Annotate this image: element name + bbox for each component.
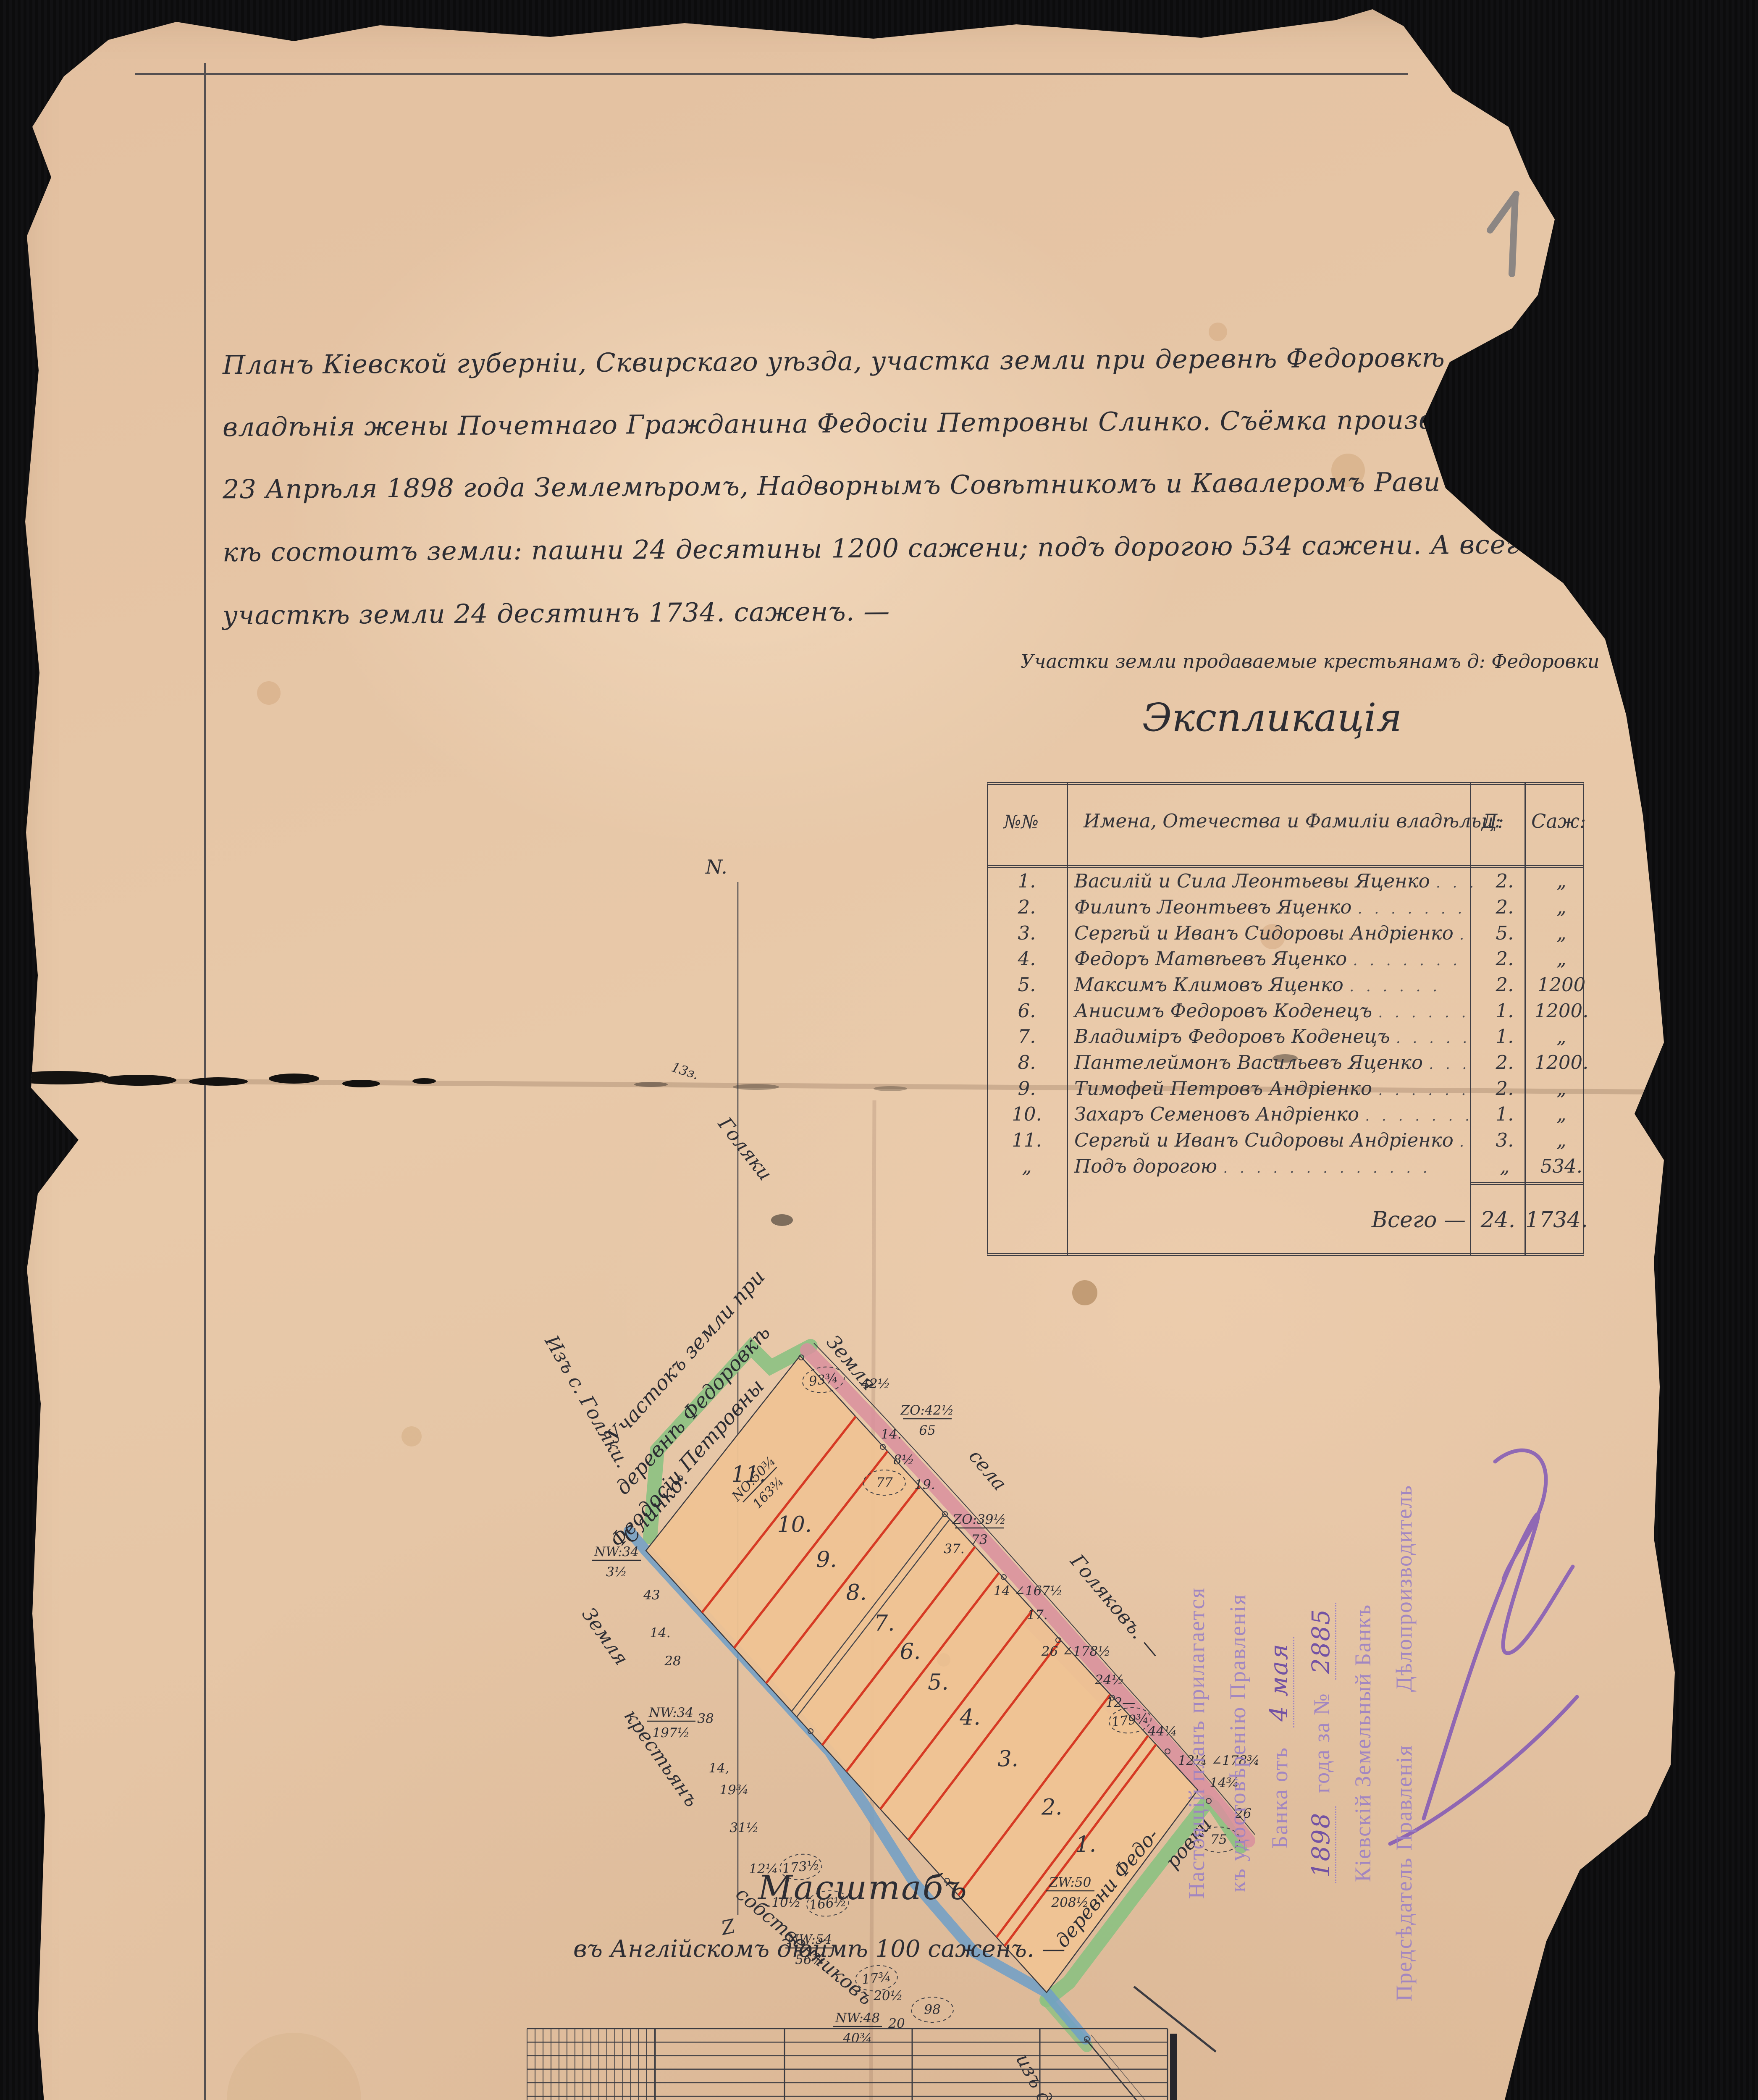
measurement-label: 31½: [729, 1820, 759, 1835]
measurement-label: 24½: [1094, 1672, 1124, 1688]
cell-desyatiny: 2.: [1477, 896, 1532, 918]
svg-text:NW:34: NW:34: [594, 1544, 639, 1559]
cell-sazheni: „: [1532, 1129, 1591, 1151]
scanned-document-page: N. Z 11.10.9.8.7.6.5.4.3.2.1.: [0, 0, 1758, 2100]
plot-number: 3.: [997, 1747, 1018, 1772]
stamp-year-handwritten: 1898: [1307, 1806, 1336, 1884]
scale-title: Масштабъ: [758, 1868, 968, 1907]
measurement-label: 14.: [881, 1427, 901, 1442]
cell-sazheni: „: [1532, 870, 1591, 892]
cell-owner-name: Пантелеймонъ Васильевъ Яценко . . . .: [1067, 1051, 1477, 1074]
bank-stamp-line-3: Банка отъ 4 мая: [1258, 1472, 1300, 2014]
table-total-row: Всего — 24. 1734.: [987, 1185, 1584, 1255]
cell-owner-name: Захаръ Семеновъ Андріенко . . . . . . . …: [1067, 1103, 1477, 1125]
cell-desyatiny: 2.: [1477, 870, 1532, 892]
dot-leader: . . . . . .: [1378, 1082, 1469, 1099]
bank-stamp-line-2: къ удостовѣренію Правленія: [1217, 1472, 1258, 2014]
col-header-num: №№: [1004, 811, 1039, 833]
cell-owner-name: Анисимъ Федоровъ Коденецъ . . . . . .: [1067, 1000, 1477, 1022]
svg-text:изъ д: Федоровки. —: изъ д: Федоровки. —: [1011, 2050, 1129, 2100]
explication-table: №№ Имена, Отечества и Фамиліи владѣльц: …: [987, 782, 1584, 1256]
measurement-label: ZO:42½65: [900, 1403, 954, 1438]
cell-sazheni: „: [1532, 1077, 1591, 1100]
cell-sazheni: „: [1532, 922, 1591, 944]
svg-text:77: 77: [876, 1475, 893, 1490]
svg-text:19¾: 19¾: [719, 1782, 749, 1798]
cell-owner-name: Владиміръ Федоровъ Коденецъ . . . . . .: [1067, 1025, 1477, 1047]
scale-bar-shadow-right: [1170, 2034, 1177, 2100]
plot-number: 1.: [1076, 1832, 1097, 1857]
cell-desyatiny: 1.: [1477, 1000, 1532, 1022]
plot-number: 7.: [874, 1611, 895, 1636]
bank-stamp-line-5: Кіевскій Земельный Банкъ: [1342, 1472, 1383, 2014]
table-row: 8.Пантелеймонъ Васильевъ Яценко . . . .2…: [987, 1050, 1584, 1076]
cell-owner-name: Сергѣй и Иванъ Сидоровы Андріенко . . . …: [1067, 922, 1477, 944]
dot-leader: . . . . . . .: [1353, 952, 1462, 969]
cell-owner-name: Подъ дорогою . . . . . . . . . . . . .: [1067, 1155, 1477, 1177]
dot-leader: . . . .: [1429, 1056, 1477, 1073]
dot-leader: . . . . . . .: [1358, 900, 1466, 917]
measurement-label: 98: [911, 1997, 953, 2022]
cell-number: 1.: [987, 870, 1067, 892]
dot-leader: . . . . . . . .: [1365, 1108, 1477, 1124]
cell-number: 3.: [987, 922, 1067, 944]
cell-desyatiny: 2.: [1477, 1051, 1532, 1074]
svg-text:26 ∠178½: 26 ∠178½: [1041, 1644, 1111, 1659]
measurement-label: 44¼: [1147, 1724, 1177, 1739]
svg-text:43: 43: [643, 1588, 660, 1603]
cell-sazheni: „: [1532, 1025, 1591, 1047]
cell-sazheni: „: [1532, 948, 1591, 970]
svg-text:38: 38: [697, 1711, 714, 1726]
cell-owner-name: Федоръ Матвѣевъ Яценко . . . . . . .: [1067, 948, 1477, 970]
cell-desyatiny: 2.: [1477, 948, 1532, 970]
measurement-label: 26 ∠178½: [1041, 1644, 1111, 1659]
measurement-label: 14,: [708, 1761, 729, 1776]
measurement-label: NW:34197½: [647, 1705, 695, 1740]
cell-number: „: [987, 1155, 1067, 1177]
cell-number: 9.: [987, 1077, 1067, 1100]
stamp-number-handwritten: 2885: [1307, 1603, 1336, 1680]
svg-text:NW:34: NW:34: [648, 1705, 693, 1720]
cell-desyatiny: „: [1477, 1155, 1532, 1177]
cell-sazheni: „: [1532, 1103, 1591, 1125]
svg-text:села: села: [964, 1445, 1011, 1495]
total-divider: [1471, 1182, 1584, 1185]
cell-sazheni: 534.: [1532, 1155, 1591, 1177]
north-label: N.: [705, 856, 727, 878]
svg-text:40¾: 40¾: [842, 2031, 872, 2046]
svg-text:14.: 14.: [650, 1625, 670, 1641]
svg-text:24½: 24½: [1094, 1672, 1124, 1688]
svg-text:42½: 42½: [861, 1376, 890, 1391]
svg-text:65: 65: [919, 1423, 935, 1438]
plot-number: 4.: [959, 1705, 981, 1730]
cell-number: 5.: [987, 974, 1067, 996]
plot-number: 5.: [928, 1670, 949, 1695]
svg-text:ZO:42½: ZO:42½: [900, 1403, 954, 1418]
measurement-label: 42½: [861, 1376, 890, 1391]
total-saj: 1734.: [1525, 1207, 1584, 1233]
svg-text:44¼: 44¼: [1147, 1724, 1177, 1739]
dot-leader: . . . . . .: [1396, 1030, 1477, 1047]
svg-text:197½: 197½: [652, 1725, 690, 1740]
measurement-label: 37.: [944, 1541, 964, 1557]
cell-desyatiny: 2.: [1477, 974, 1532, 996]
map-place-label: Земля: [577, 1603, 633, 1669]
stamp-date-handwritten: 4 мая: [1265, 1637, 1294, 1727]
cell-owner-name: Тимофей Петровъ Андріенко . . . . . .: [1067, 1077, 1477, 1100]
table-row: 1.Василій и Сила Леонтьевы Яценко . . . …: [987, 868, 1584, 894]
svg-text:14 ∠167½: 14 ∠167½: [994, 1583, 1063, 1599]
plot-number: 8.: [846, 1580, 867, 1605]
stamp-ring-text: НАДВОРНАГО СОВѢТНИКА Б. РАВИЧА: [0, 13, 390, 2100]
measurement-label: 17.: [1027, 1607, 1047, 1622]
col-header-name: Имена, Отечества и Фамиліи владѣльц:: [1084, 810, 1501, 832]
svg-text:14.: 14.: [881, 1427, 901, 1442]
cell-owner-name: Василій и Сила Леонтьевы Яценко . . . .: [1067, 870, 1477, 892]
svg-text:73: 73: [971, 1532, 987, 1547]
cell-sazheni: 1200.: [1532, 1051, 1591, 1074]
table-row: 10.Захаръ Семеновъ Андріенко . . . . . .…: [987, 1101, 1584, 1127]
table-row: 5.Максимъ Климовъ Яценко . . . . . .2.12…: [987, 972, 1584, 998]
measurement-label: 28: [664, 1654, 681, 1669]
surveyor-round-stamp: НАДВОРНАГО СОВѢТНИКА Б. РАВИЧА ♛ ПЕЧАТЬ …: [0, 13, 404, 2100]
measurement-label: NW:343½: [592, 1544, 641, 1580]
plot-number: 6.: [900, 1639, 921, 1664]
bank-stamp-line-4: 1898 года за № 2885: [1300, 1472, 1342, 2014]
pencil-number: [1490, 194, 1516, 274]
explication-title: Экспликація: [1142, 695, 1402, 740]
cell-owner-name: Сергѣй и Иванъ Сидоровы Андріенко . . . …: [1067, 1129, 1477, 1151]
cell-owner-name: Филипъ Леонтьевъ Яценко . . . . . . .: [1067, 896, 1477, 918]
table-row: 6.Анисимъ Федоровъ Коденецъ . . . . . .1…: [987, 997, 1584, 1024]
measurement-label: 19¾: [719, 1782, 749, 1798]
svg-text:17¾: 17¾: [861, 1969, 892, 1987]
col-header-saj: Саж:: [1531, 810, 1586, 832]
cell-number: 2.: [987, 896, 1067, 918]
svg-text:8½: 8½: [893, 1452, 914, 1467]
measurement-label: 14.: [650, 1625, 670, 1641]
svg-text:13з.: 13з.: [669, 1060, 701, 1083]
table-row: 11.Сергѣй и Иванъ Сидоровы Андріенко . .…: [987, 1127, 1584, 1153]
col-header-des: Д:: [1482, 810, 1504, 832]
svg-text:17.: 17.: [1027, 1607, 1047, 1622]
bank-stamp-block: Настоящій планъ прилагается къ удостовѣр…: [1176, 1472, 1470, 2014]
measurement-label: 13з.: [669, 1060, 701, 1083]
svg-text:ZO:39½: ZO:39½: [952, 1512, 1006, 1527]
dot-leader: . . . .: [1436, 874, 1477, 891]
svg-text:ZW:50: ZW:50: [1049, 1875, 1092, 1890]
dot-leader: . . . . . . . . . . . . .: [1223, 1160, 1431, 1176]
cell-desyatiny: 2.: [1477, 1077, 1532, 1100]
cell-sazheni: 1200: [1532, 974, 1591, 996]
cell-desyatiny: 5.: [1477, 922, 1532, 944]
total-label: Всего —: [1319, 1207, 1466, 1233]
bank-stamp-line-6: Предсѣдатель Правленія: [1383, 1745, 1425, 2001]
plot-number: 9.: [816, 1547, 837, 1572]
map-place-label: села: [964, 1445, 1011, 1495]
table-header-row: №№ Имена, Отечества и Фамиліи владѣльц: …: [987, 782, 1584, 868]
cell-number: 7.: [987, 1025, 1067, 1047]
cell-desyatiny: 1.: [1477, 1025, 1532, 1047]
cell-number: 8.: [987, 1051, 1067, 1074]
bank-stamp-line-7: Дѣлопроизводитель: [1383, 1485, 1425, 1692]
svg-text:28: 28: [664, 1654, 681, 1669]
explication-intro: Участки земли продаваемые крестьянамъ д:…: [1021, 650, 1600, 672]
map-place-label: Голяки: [714, 1113, 777, 1185]
table-row: „Подъ дорогою . . . . . . . . . . . . .„…: [987, 1153, 1584, 1179]
svg-text:Изъ с. Голяки.: Изъ с. Голяки.: [540, 1331, 635, 1472]
measurement-label: 20½: [873, 1988, 903, 2003]
table-row: 9.Тимофей Петровъ Андріенко . . . . . .2…: [987, 1075, 1584, 1101]
svg-text:37.: 37.: [944, 1541, 964, 1557]
table-rows: 1.Василій и Сила Леонтьевы Яценко . . . …: [987, 868, 1584, 1179]
svg-text:98: 98: [924, 2002, 940, 2017]
map-place-label: Изъ с. Голяки.: [540, 1331, 635, 1472]
svg-text:19.: 19.: [914, 1477, 935, 1492]
measurement-label: 14 ∠167½: [994, 1583, 1063, 1599]
cell-sazheni: 1200.: [1532, 1000, 1591, 1022]
cell-number: 10.: [987, 1103, 1067, 1125]
table-row: 7.Владиміръ Федоровъ Коденецъ . . . . . …: [987, 1024, 1584, 1050]
table-row: 4.Федоръ Матвѣевъ Яценко . . . . . . .2.…: [987, 946, 1584, 972]
cell-desyatiny: 3.: [1477, 1129, 1532, 1151]
map-place-label: изъ д: Федоровки. —: [1011, 2050, 1129, 2100]
dot-leader: . . . . . .: [1378, 1004, 1470, 1021]
svg-text:Голяки: Голяки: [714, 1113, 777, 1185]
measurement-label: 8½: [893, 1452, 914, 1467]
svg-text:NW:48: NW:48: [835, 2011, 880, 2026]
plot-number: 2.: [1041, 1795, 1063, 1820]
svg-text:208½: 208½: [1051, 1895, 1089, 1910]
svg-text:Земля: Земля: [577, 1603, 633, 1669]
measurement-label: 19.: [914, 1477, 935, 1492]
cell-sazheni: „: [1532, 896, 1591, 918]
table-row: 3.Сергѣй и Иванъ Сидоровы Андріенко . . …: [987, 920, 1584, 946]
svg-text:31½: 31½: [729, 1820, 759, 1835]
scale-subtitle: въ Англійскомъ дюймѣ 100 саженъ. —: [573, 1935, 1065, 1963]
svg-text:20½: 20½: [873, 1988, 903, 2003]
measurement-label: 38: [697, 1711, 714, 1726]
plot-number: 10.: [777, 1512, 812, 1538]
bank-stamp-line-1: Настоящій планъ прилагается: [1176, 1472, 1217, 2014]
cell-number: 4.: [987, 948, 1067, 970]
dot-leader: . . . .: [1459, 927, 1477, 943]
dot-leader: . . . . . .: [1349, 978, 1441, 995]
svg-text:3½: 3½: [606, 1564, 627, 1580]
svg-text:14,: 14,: [708, 1761, 729, 1776]
dot-leader: . . . .: [1459, 1134, 1477, 1150]
paper-sheet: N. Z 11.10.9.8.7.6.5.4.3.2.1.: [0, 0, 1758, 2100]
cell-number: 6.: [987, 1000, 1067, 1022]
cell-owner-name: Максимъ Климовъ Яценко . . . . . .: [1067, 974, 1477, 996]
table-row: 2.Филипъ Леонтьевъ Яценко . . . . . . .2…: [987, 894, 1584, 920]
cell-number: 11.: [987, 1129, 1067, 1151]
cell-desyatiny: 1.: [1477, 1103, 1532, 1125]
total-des: 24.: [1471, 1207, 1525, 1233]
measurement-label: 43: [643, 1588, 660, 1603]
